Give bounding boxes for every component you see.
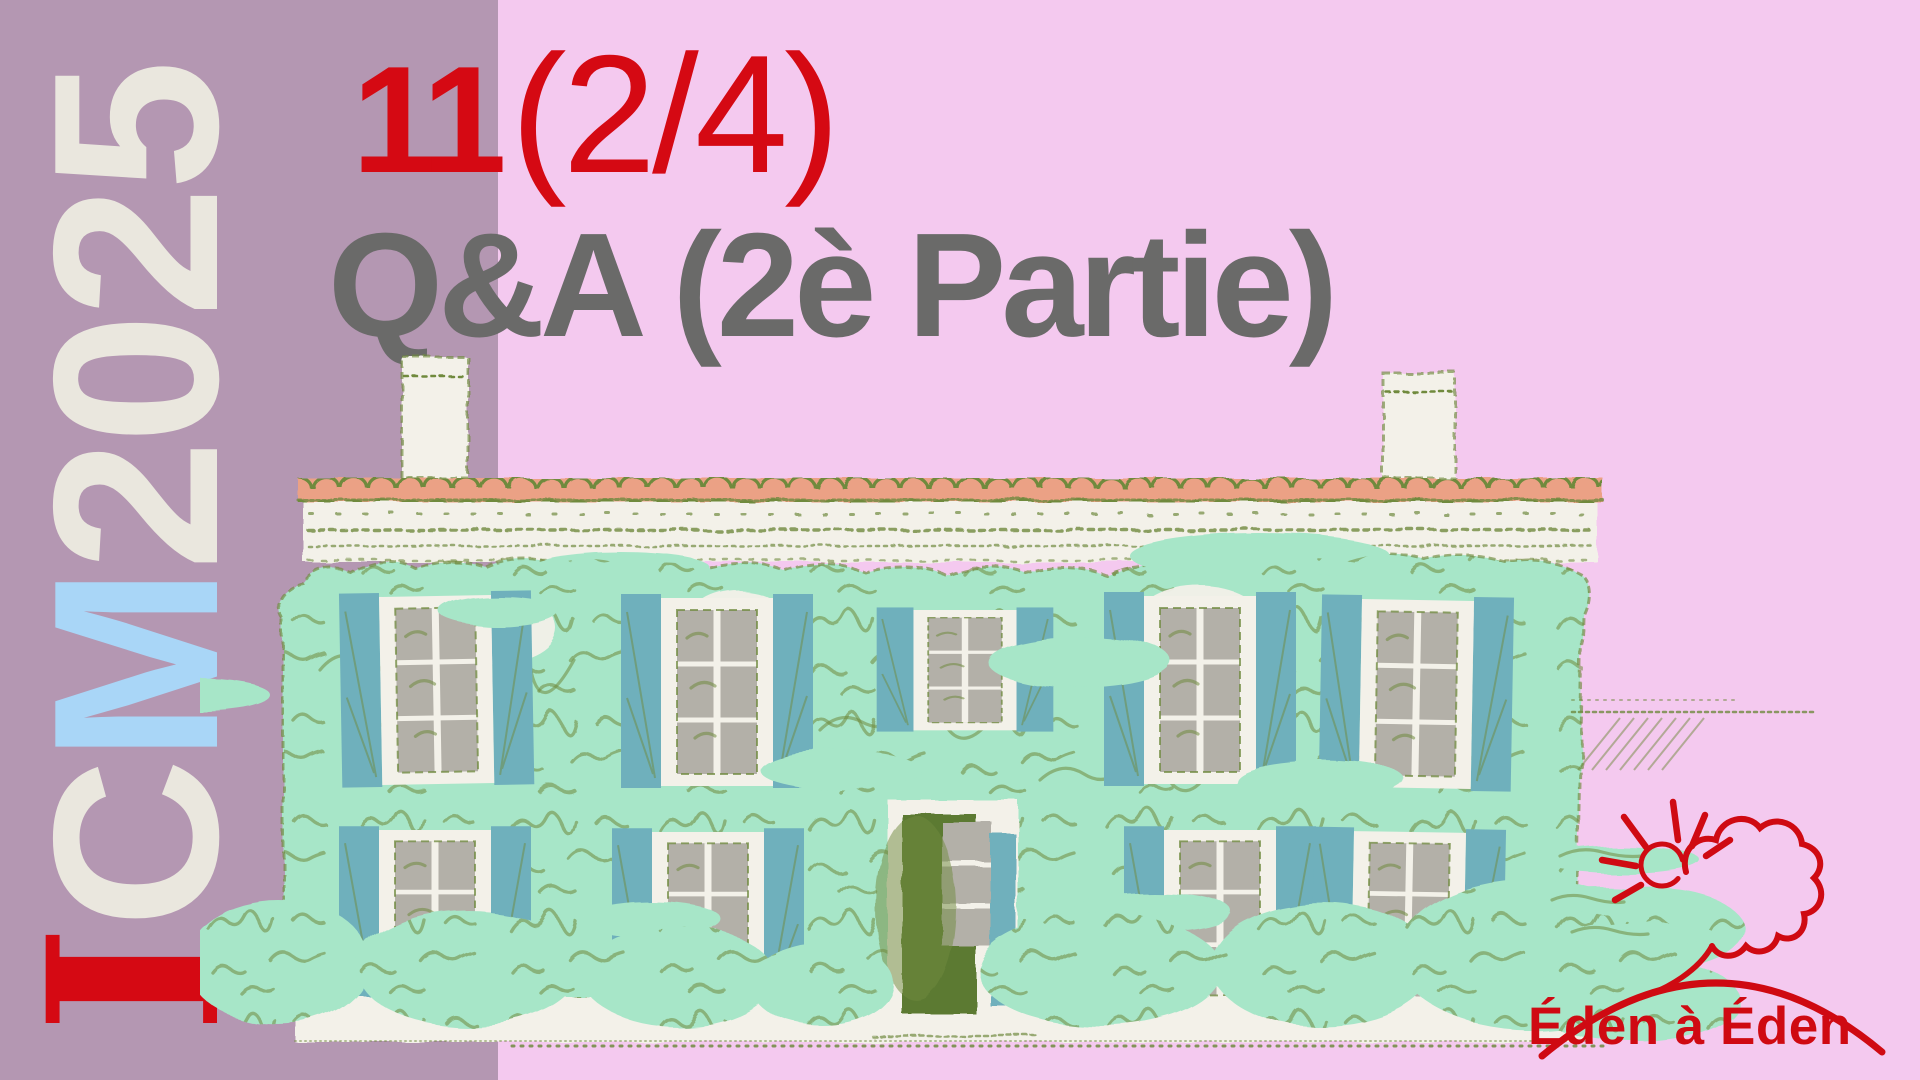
chimney-right — [1383, 373, 1455, 478]
cornice — [303, 502, 1597, 562]
window-upper-4 — [1104, 592, 1296, 786]
title-card: ICM2025 11 (2/4) Q&A (2è Partie) — [0, 0, 1920, 1080]
chimney-left — [402, 357, 468, 478]
episode-part: (2/4) — [511, 30, 836, 198]
logo-text: Éden à Éden — [1528, 996, 1852, 1056]
roof — [298, 478, 1603, 502]
episode-header: 11 (2/4) — [352, 30, 836, 198]
house-illustration: Éden à Éden — [200, 300, 1920, 1080]
episode-number: 11 — [352, 44, 501, 196]
